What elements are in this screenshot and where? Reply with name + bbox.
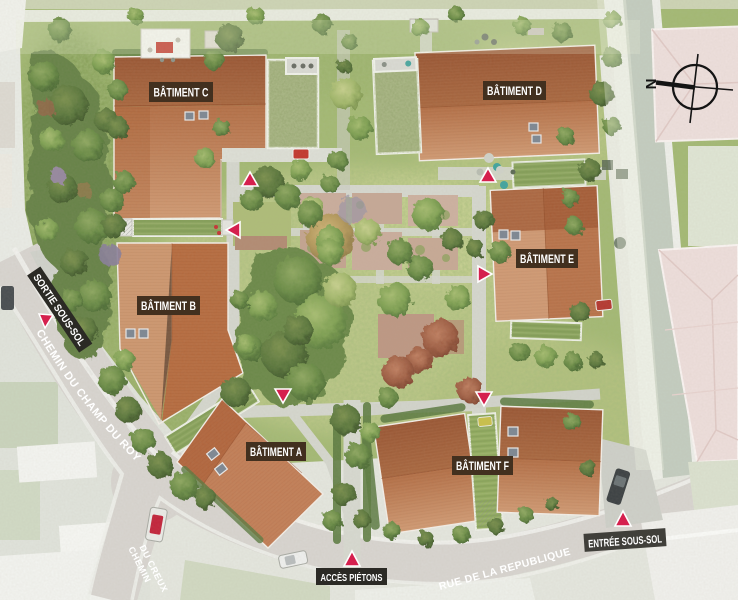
svg-text:BÂTIMENT C: BÂTIMENT C bbox=[154, 87, 209, 100]
svg-text:ACCÈS PIÉTONS: ACCÈS PIÉTONS bbox=[321, 571, 383, 584]
svg-text:N: N bbox=[643, 79, 660, 90]
svg-text:BÂTIMENT E: BÂTIMENT E bbox=[520, 253, 574, 266]
svg-text:BÂTIMENT A: BÂTIMENT A bbox=[250, 446, 302, 459]
svg-text:BÂTIMENT D: BÂTIMENT D bbox=[487, 85, 542, 98]
svg-text:BÂTIMENT F: BÂTIMENT F bbox=[456, 460, 509, 473]
svg-text:BÂTIMENT B: BÂTIMENT B bbox=[141, 300, 196, 313]
